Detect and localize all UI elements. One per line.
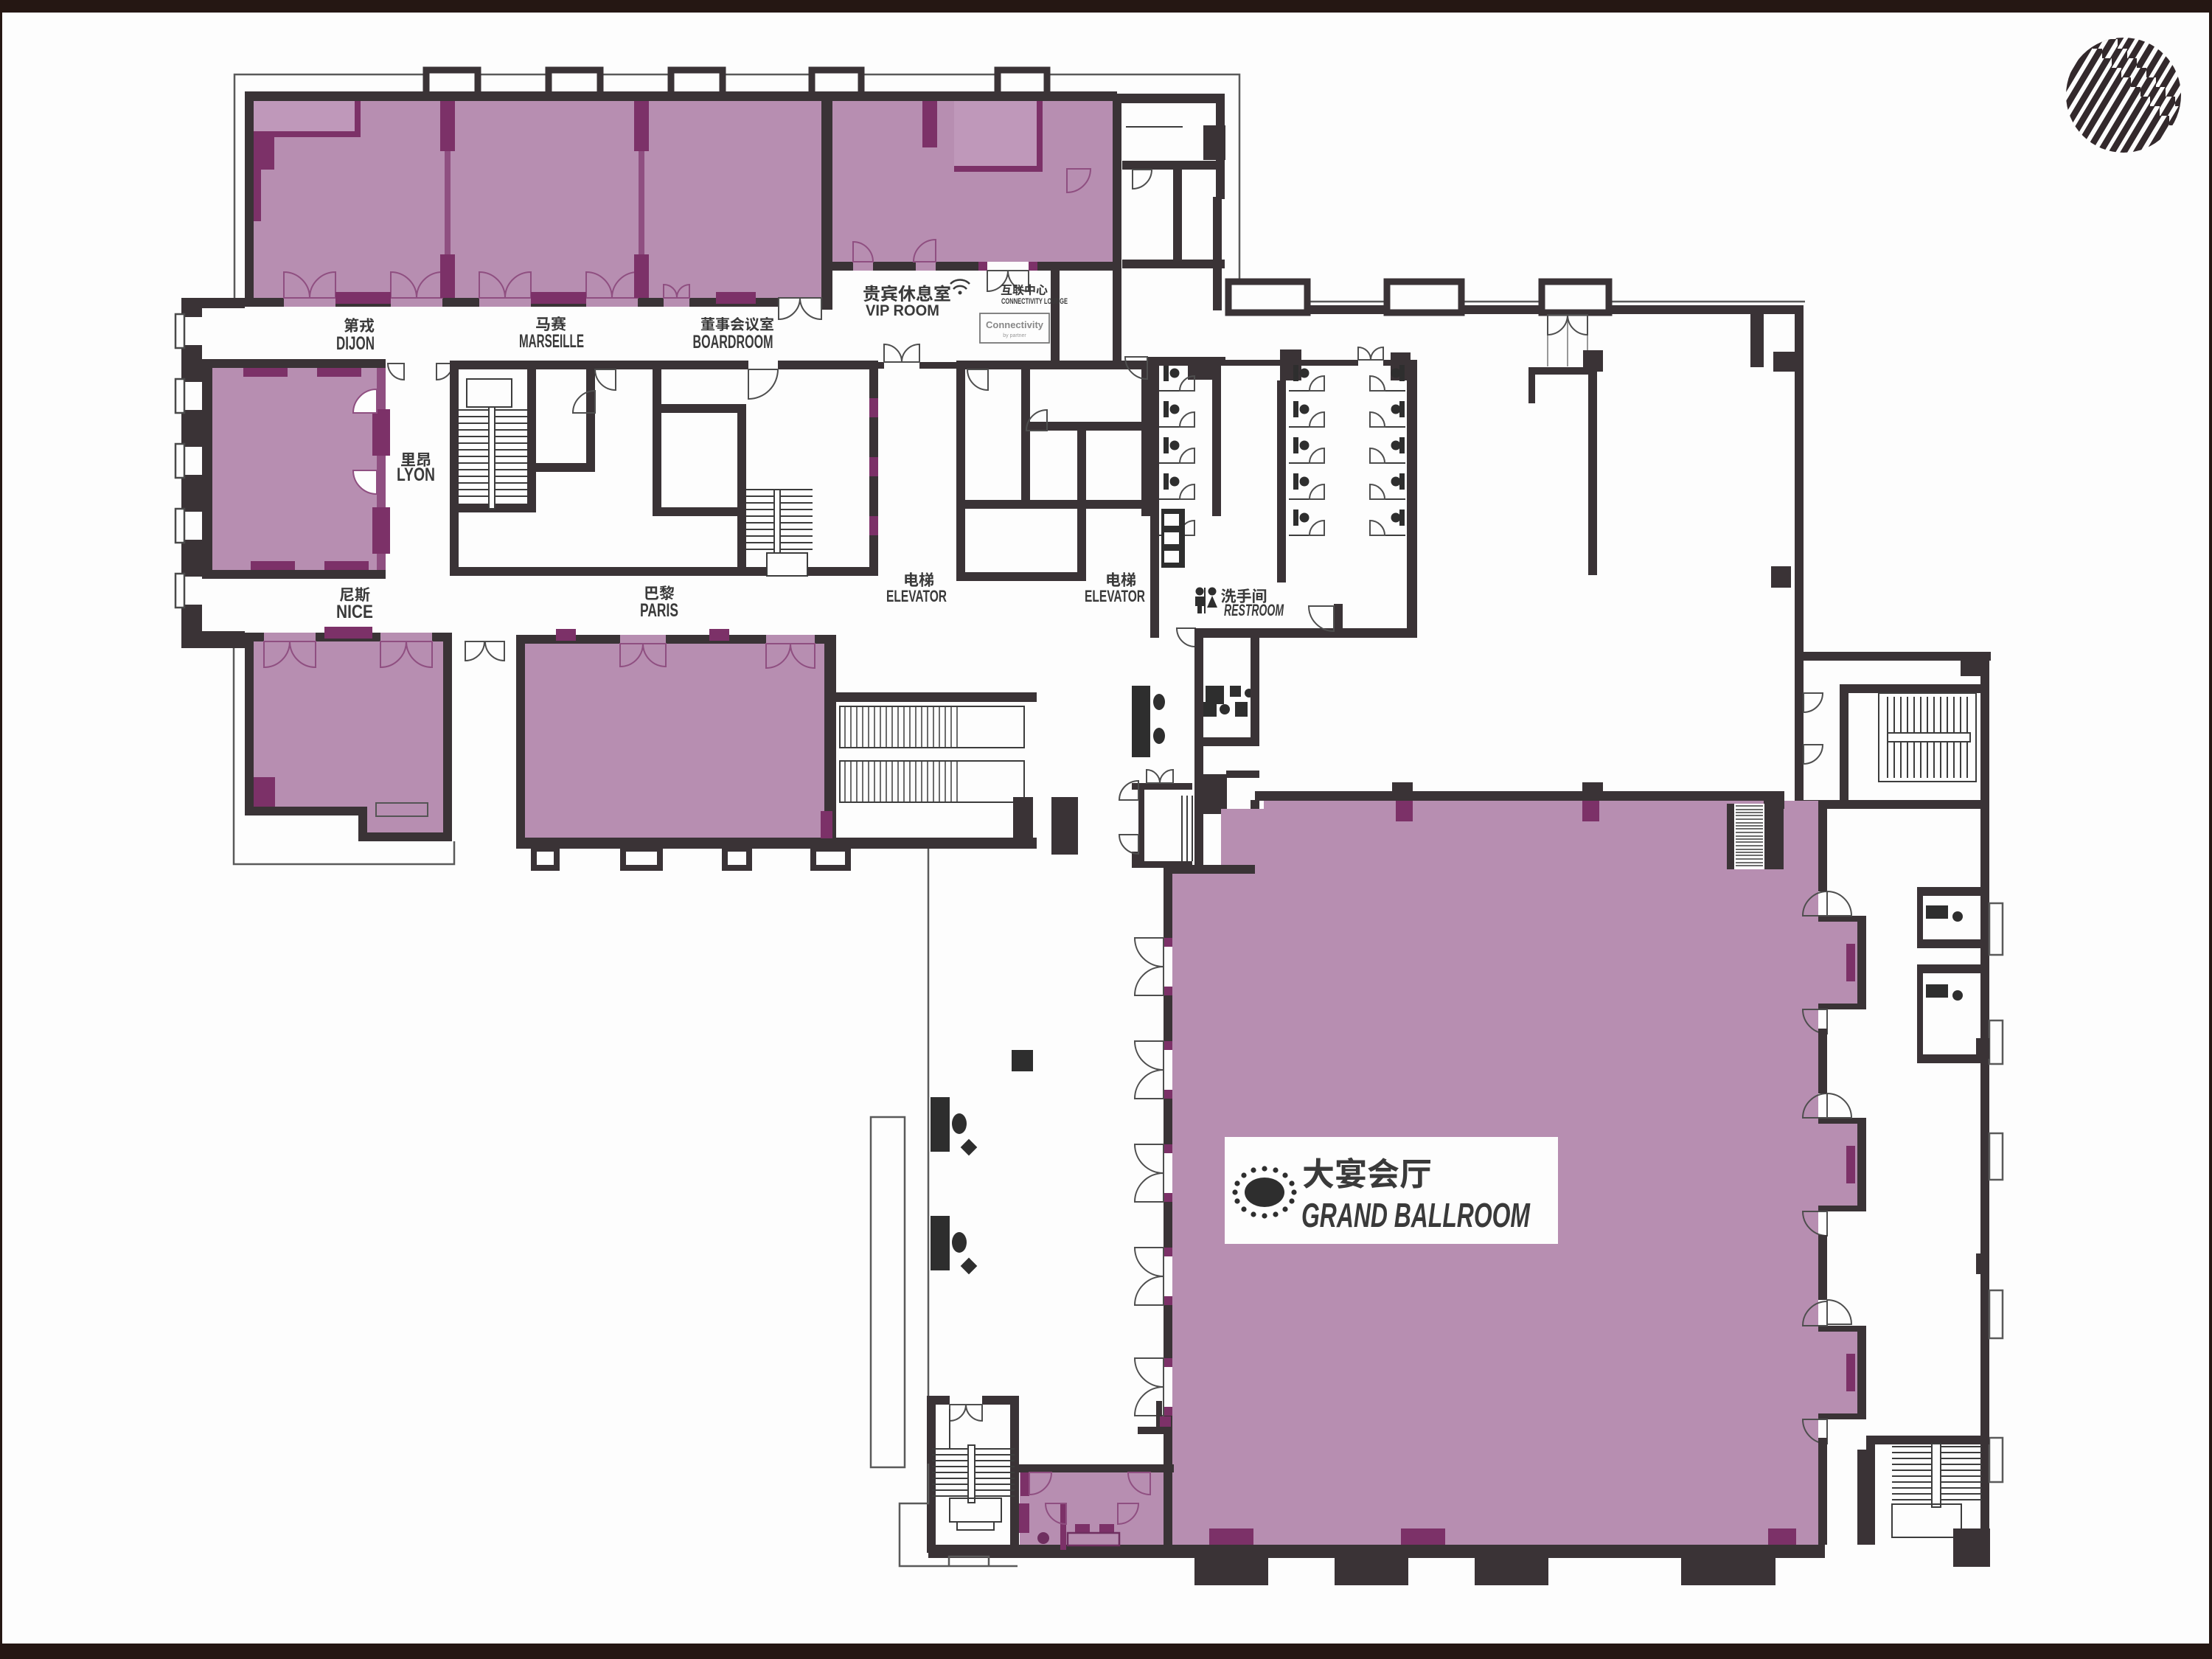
svg-text:LYON: LYON xyxy=(397,465,435,485)
svg-text:ELEVATOR: ELEVATOR xyxy=(886,587,947,605)
svg-text:RESTROOM: RESTROOM xyxy=(1224,601,1284,619)
svg-text:by partner: by partner xyxy=(1003,333,1026,338)
svg-text:PARIS: PARIS xyxy=(640,600,678,621)
svg-text:CONNECTIVITY LOUNGE: CONNECTIVITY LOUNGE xyxy=(1001,297,1068,306)
svg-text:BOARDROOM: BOARDROOM xyxy=(693,332,773,352)
svg-text:Connectivity: Connectivity xyxy=(986,319,1044,330)
svg-text:MARSEILLE: MARSEILLE xyxy=(519,331,584,352)
svg-text:DIJON: DIJON xyxy=(336,333,375,354)
svg-text:GRAND BALLROOM: GRAND BALLROOM xyxy=(1301,1196,1531,1234)
svg-text:NICE: NICE xyxy=(336,602,373,622)
svg-text:ELEVATOR: ELEVATOR xyxy=(1085,587,1145,605)
svg-text:VIP ROOM: VIP ROOM xyxy=(866,302,939,319)
